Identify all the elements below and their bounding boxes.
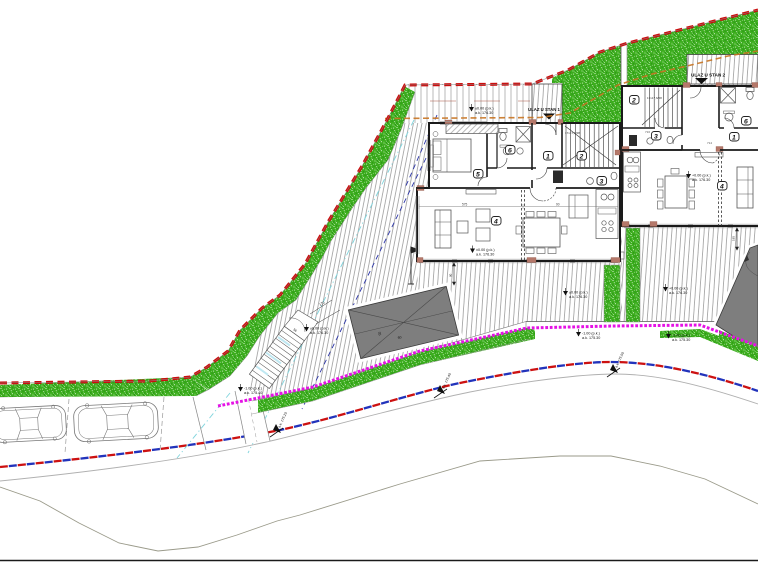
svg-text:+0.00 (p.k.): +0.00 (p.k.): [692, 174, 711, 178]
svg-text:a.k. 176.30: a.k. 176.30: [569, 295, 587, 299]
svg-text:5: 5: [476, 172, 480, 179]
svg-text:185: 185: [732, 236, 736, 241]
svg-text:4: 4: [719, 184, 724, 191]
svg-text:-1.00 (p.k.): -1.00 (p.k.): [672, 334, 690, 338]
svg-text:6: 6: [508, 148, 512, 155]
svg-text:2: 2: [631, 98, 636, 105]
svg-text:90: 90: [556, 203, 560, 207]
svg-text:±0.00 (p.k.): ±0.00 (p.k.): [475, 107, 494, 111]
svg-text:ULAZ U STAN 1: ULAZ U STAN 1: [528, 107, 561, 112]
svg-text:17x17,6/28: 17x17,6/28: [565, 131, 580, 135]
svg-text:4: 4: [493, 219, 498, 226]
svg-text:1: 1: [546, 154, 550, 161]
svg-text:3: 3: [600, 179, 604, 186]
svg-text:±0.00 (p.k.): ±0.00 (p.k.): [310, 327, 329, 331]
svg-text:-1.00 (p.k.): -1.00 (p.k.): [244, 387, 262, 391]
svg-text:1: 1: [732, 135, 736, 142]
svg-text:±0.00 (p.k.): ±0.00 (p.k.): [569, 291, 588, 295]
svg-text:+0.00 (p.k.): +0.00 (p.k.): [669, 287, 688, 291]
svg-text:a.k. 175.30: a.k. 175.30: [582, 336, 600, 340]
svg-text:ULAZ U STAN 2: ULAZ U STAN 2: [691, 73, 726, 78]
svg-text:575: 575: [462, 203, 468, 207]
svg-text:2: 2: [579, 154, 584, 161]
svg-text:17x17,6/28: 17x17,6/28: [647, 96, 662, 100]
svg-text:90: 90: [449, 273, 453, 277]
svg-text:a.k. 175.40: a.k. 175.40: [244, 391, 262, 395]
svg-text:a.k. 176.30: a.k. 176.30: [310, 331, 328, 335]
svg-text:a.k. 176.30: a.k. 176.30: [476, 253, 494, 257]
svg-text:716: 716: [645, 130, 650, 134]
svg-text:±0.00 (p.k.): ±0.00 (p.k.): [476, 248, 495, 252]
svg-text:a.k. 176.30: a.k. 176.30: [669, 291, 687, 295]
svg-text:3: 3: [654, 134, 658, 141]
svg-text:714: 714: [707, 141, 712, 145]
svg-text:a.k. 175.30: a.k. 175.30: [672, 338, 690, 342]
svg-text:6: 6: [744, 119, 748, 126]
svg-text:-1.00 (p.k.): -1.00 (p.k.): [582, 332, 600, 336]
svg-text:a.k. 176.30: a.k. 176.30: [475, 111, 493, 115]
svg-text:a.k. 176.30: a.k. 176.30: [692, 178, 710, 182]
